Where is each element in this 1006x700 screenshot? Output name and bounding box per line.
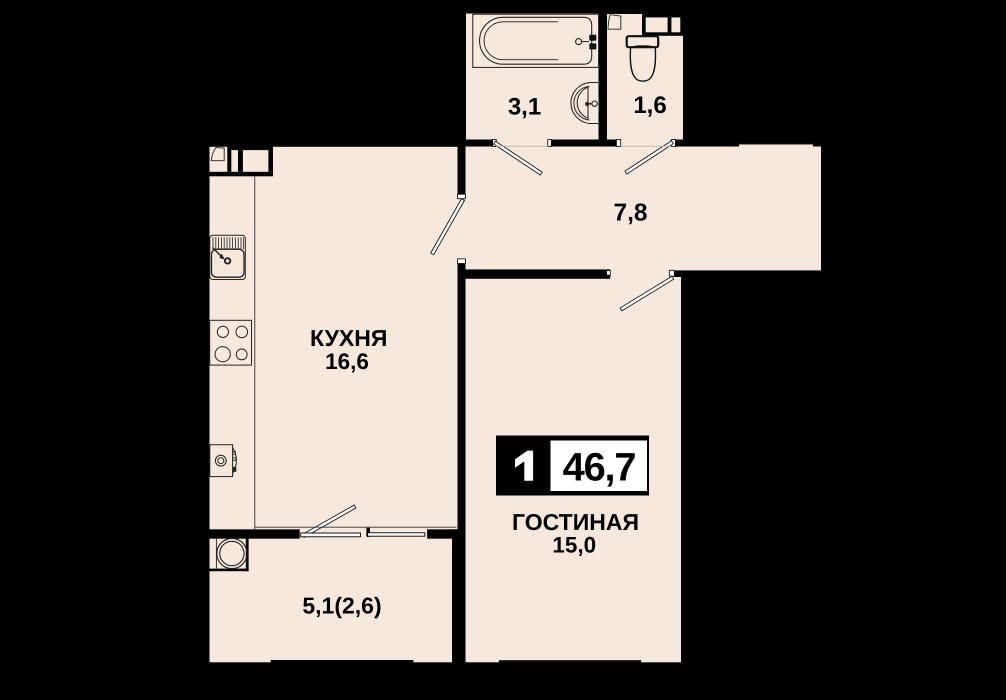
svg-text:3,1: 3,1: [508, 93, 541, 120]
svg-text:7,8: 7,8: [613, 200, 647, 227]
svg-text:15,0: 15,0: [552, 533, 596, 558]
svg-text:ГОСТИНАЯ: ГОСТИНАЯ: [512, 509, 639, 535]
svg-text:5,1(2,6): 5,1(2,6): [302, 593, 381, 619]
svg-text:1,6: 1,6: [633, 92, 666, 119]
svg-text:КУХНЯ: КУХНЯ: [310, 325, 387, 351]
svg-text:46,7: 46,7: [563, 446, 636, 490]
svg-text:16,6: 16,6: [325, 349, 369, 374]
